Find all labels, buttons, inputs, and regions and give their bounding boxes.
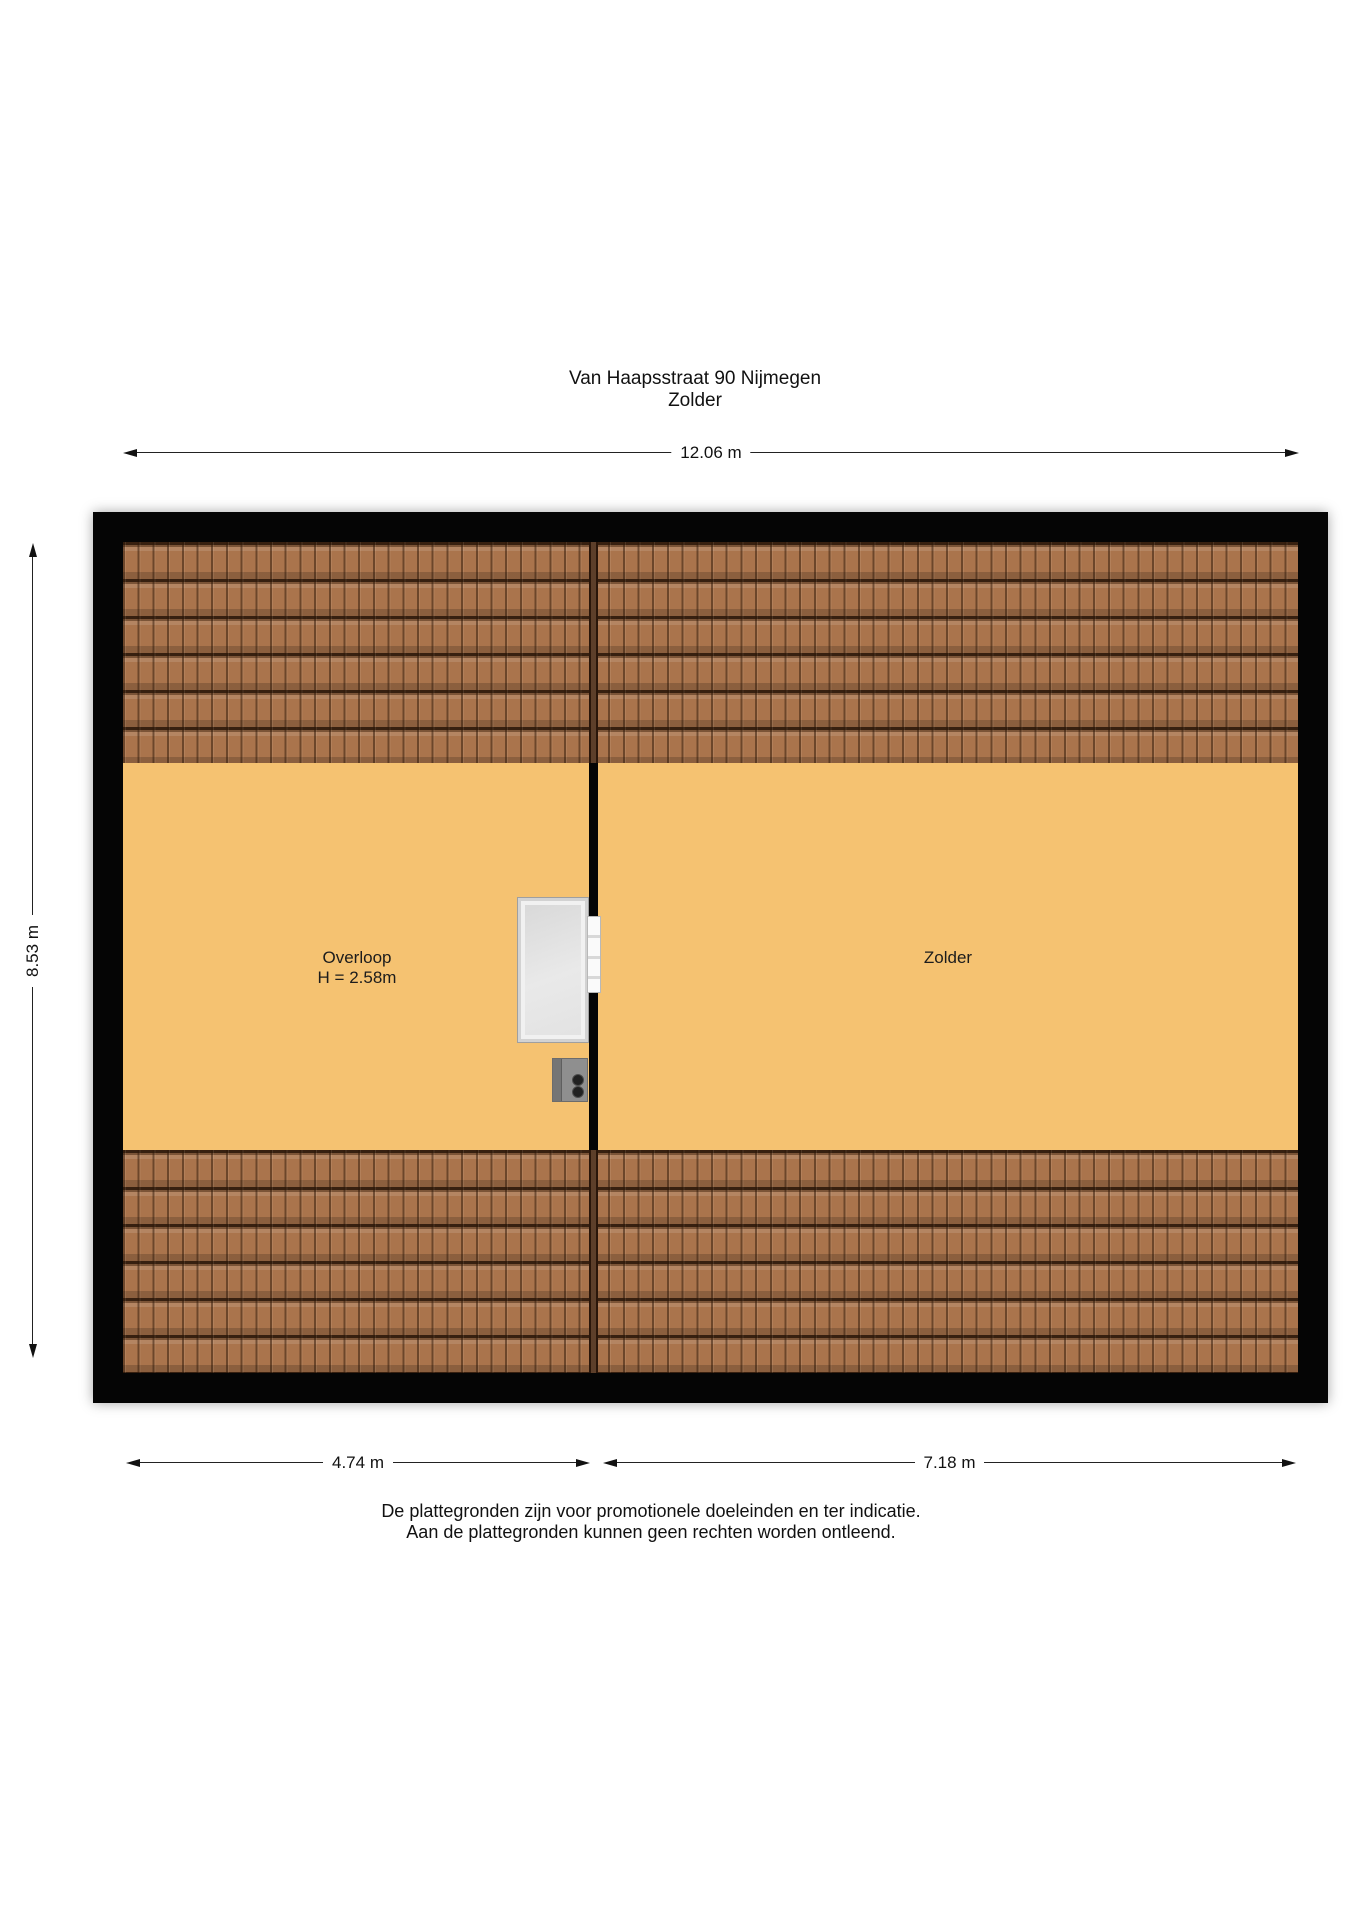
door-panel-line (588, 976, 600, 979)
disclaimer-line1: De plattegronden zijn voor promotionele … (301, 1501, 1001, 1522)
stair-opening (518, 898, 588, 1042)
dimension-overloop-width: 4.74 m (126, 1455, 590, 1470)
arrow-left-icon (123, 449, 137, 457)
address-line: Van Haapsstraat 90 Nijmegen (395, 368, 995, 390)
arrow-right-icon (1285, 449, 1299, 457)
door-panel-line (588, 935, 600, 938)
room-label-overloop: Overloop H = 2.58m (237, 948, 477, 988)
roof-ridge-seam-top (589, 542, 598, 763)
boiler-unit (552, 1058, 588, 1102)
arrow-down-icon (29, 1344, 37, 1358)
disclaimer-line2: Aan de plattegronden kunnen geen rechten… (301, 1522, 1001, 1543)
dimension-label: 12.06 m (671, 443, 750, 463)
dimension-total-width: 12.06 m (123, 445, 1299, 460)
boiler-knob-icon (572, 1086, 584, 1098)
dimension-zolder-width: 7.18 m (603, 1455, 1296, 1470)
plan-title: Van Haapsstraat 90 Nijmegen Zolder (395, 368, 995, 412)
room-name: Zolder (828, 948, 1068, 968)
arrow-right-icon (1282, 1459, 1296, 1467)
boiler-knob-icon (572, 1074, 584, 1086)
arrow-left-icon (126, 1459, 140, 1467)
arrow-left-icon (603, 1459, 617, 1467)
dimension-total-depth: 8.53 m (25, 543, 40, 1358)
disclaimer: De plattegronden zijn voor promotionele … (301, 1501, 1001, 1543)
room-name: Overloop (237, 948, 477, 968)
dimension-label: 8.53 m (23, 915, 43, 987)
dimension-label: 4.74 m (323, 1453, 393, 1473)
arrow-right-icon (576, 1459, 590, 1467)
room-ceiling-height: H = 2.58m (237, 968, 477, 988)
roof-tiles-top (123, 542, 1298, 763)
boiler-panel (553, 1059, 562, 1101)
dimension-label: 7.18 m (915, 1453, 985, 1473)
interior-door (587, 916, 601, 993)
roof-ridge-seam-bottom (589, 1150, 598, 1373)
arrow-up-icon (29, 543, 37, 557)
roof-tiles-bottom (123, 1150, 1298, 1373)
room-label-zolder: Zolder (828, 948, 1068, 968)
floor-name-line: Zolder (395, 390, 995, 412)
door-panel-line (588, 956, 600, 959)
